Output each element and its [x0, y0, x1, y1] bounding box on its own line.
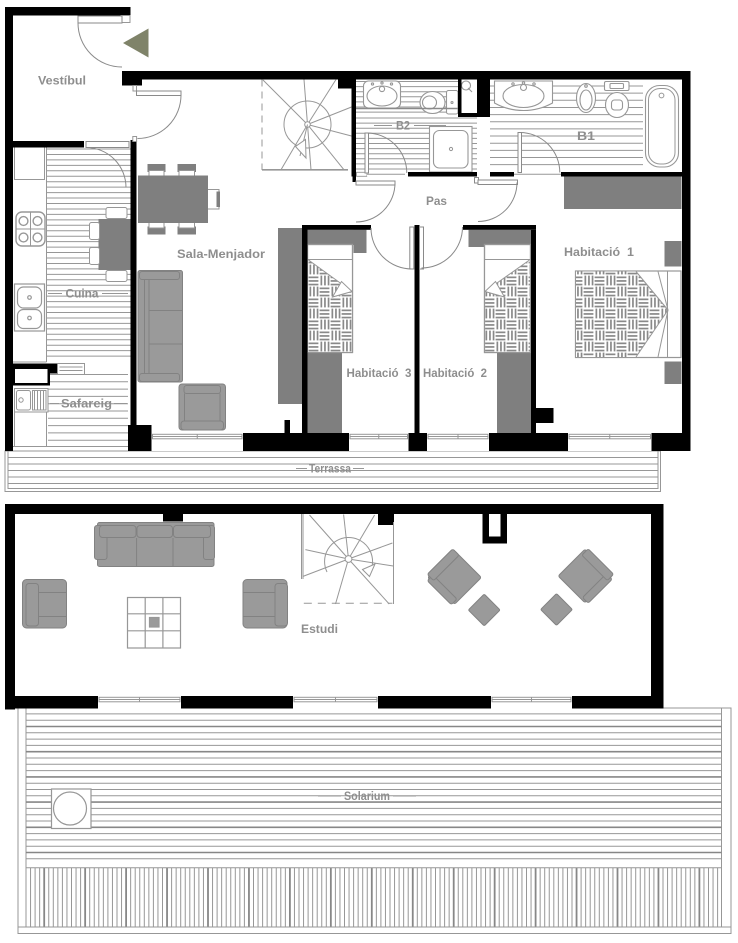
svg-text:Pas: Pas: [426, 196, 447, 208]
svg-text:Terrassa: Terrassa: [309, 464, 352, 476]
svg-text:Safareig: Safareig: [61, 399, 112, 411]
svg-text:Habitació 1: Habitació 1: [564, 247, 635, 259]
svg-text:Vestíbul: Vestíbul: [38, 76, 86, 88]
svg-text:B2: B2: [396, 121, 410, 133]
svg-text:Sala-Menjador: Sala-Menjador: [177, 249, 266, 261]
svg-text:B1: B1: [577, 131, 596, 143]
svg-text:Solarium: Solarium: [344, 791, 390, 803]
svg-text:Cuina: Cuina: [66, 289, 100, 301]
svg-text:Habitació 3: Habitació 3: [347, 368, 412, 380]
svg-text:Habitació 2: Habitació 2: [423, 368, 487, 380]
svg-text:Estudi: Estudi: [301, 624, 338, 636]
